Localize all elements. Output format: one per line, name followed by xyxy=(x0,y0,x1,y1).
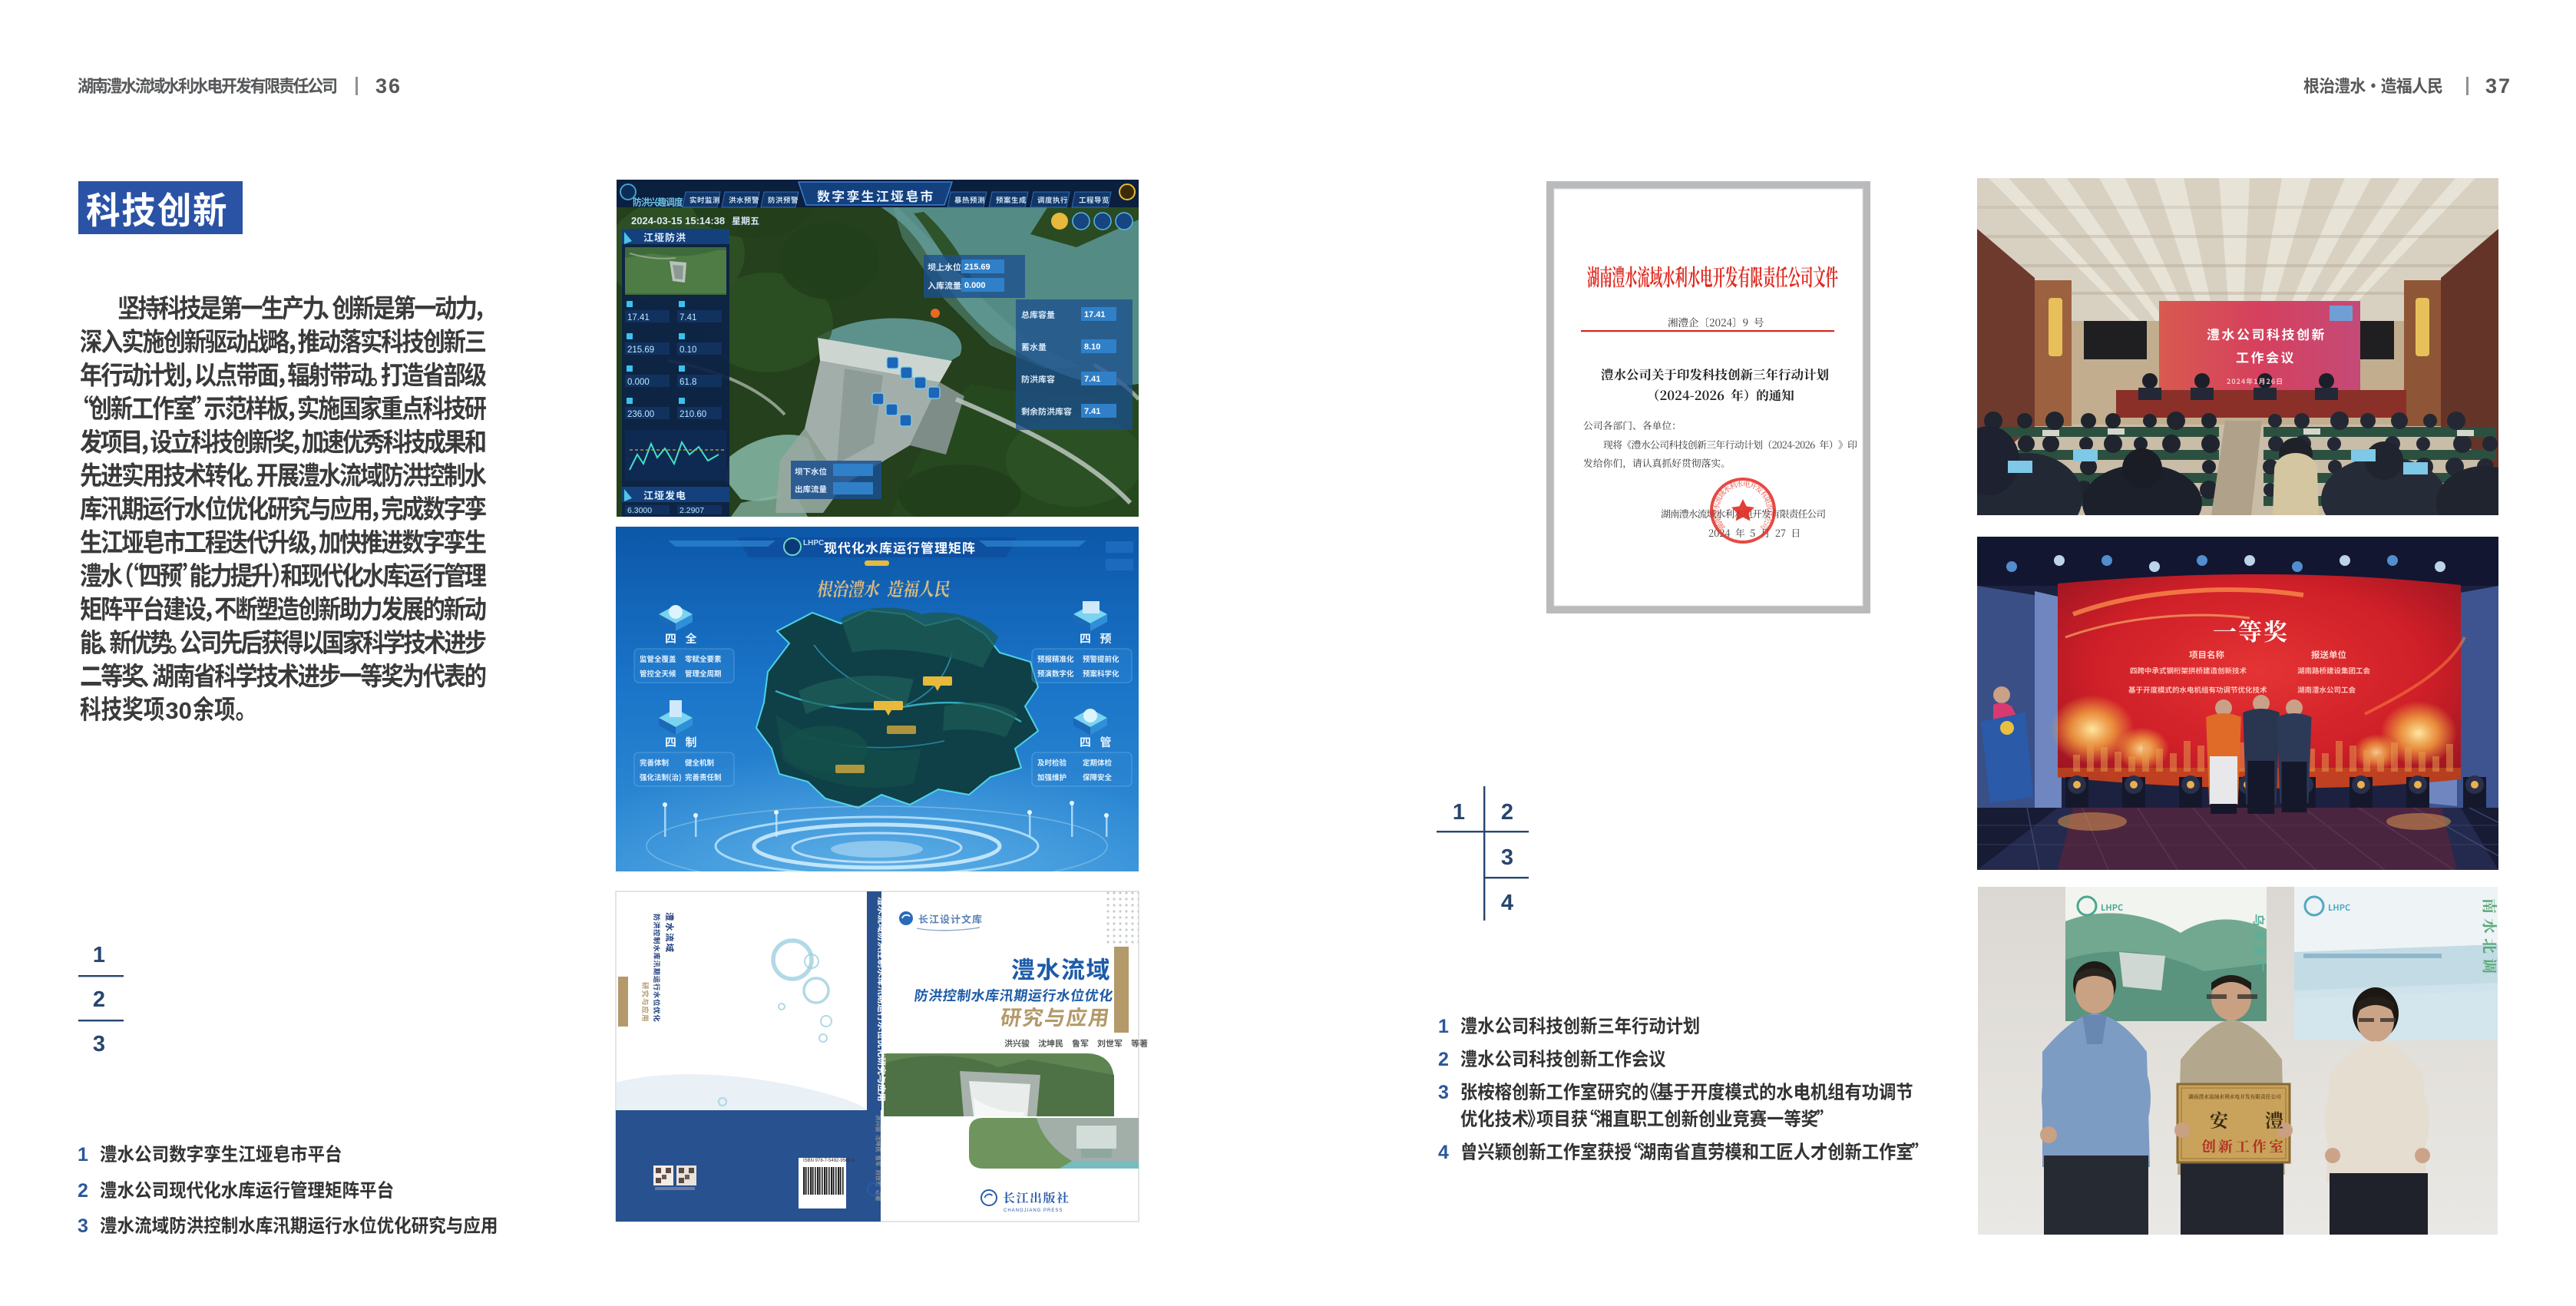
svg-text:17.41: 17.41 xyxy=(627,313,650,322)
svg-text:4: 4 xyxy=(1501,891,1513,915)
svg-text:0.000: 0.000 xyxy=(964,281,986,290)
svg-text:0.000: 0.000 xyxy=(627,378,650,387)
svg-text:215.69: 215.69 xyxy=(964,263,990,272)
svg-text:7.41: 7.41 xyxy=(1084,375,1100,384)
svg-text:215.69: 215.69 xyxy=(627,346,654,355)
svg-text:210.60: 210.60 xyxy=(680,410,706,419)
svg-text:3: 3 xyxy=(78,1215,88,1237)
svg-text:36: 36 xyxy=(375,74,402,98)
svg-text:2.2907: 2.2907 xyxy=(680,506,704,515)
svg-text:8.10: 8.10 xyxy=(1084,342,1100,352)
svg-text:6.3000: 6.3000 xyxy=(627,506,652,515)
svg-text:1: 1 xyxy=(93,943,105,967)
svg-text:2: 2 xyxy=(78,1180,88,1202)
svg-text:1: 1 xyxy=(1438,1016,1449,1037)
svg-text:3: 3 xyxy=(1438,1082,1449,1103)
svg-text:2: 2 xyxy=(1438,1049,1449,1070)
svg-text:3: 3 xyxy=(1501,845,1513,870)
svg-text:37: 37 xyxy=(2485,74,2512,98)
svg-text:ISBN 978-7-5492-9569-9: ISBN 978-7-5492-9569-9 xyxy=(803,1159,855,1163)
svg-text:CHANGJIANG PRESS: CHANGJIANG PRESS xyxy=(1004,1208,1063,1213)
svg-text:61.8: 61.8 xyxy=(680,378,696,387)
svg-text:4: 4 xyxy=(1438,1142,1449,1163)
svg-text:7.41: 7.41 xyxy=(680,313,696,322)
svg-text:2024-03-15 15:14:38: 2024-03-15 15:14:38 xyxy=(631,215,725,226)
svg-text:2: 2 xyxy=(1501,800,1513,825)
svg-text:LHPC: LHPC xyxy=(803,539,824,547)
svg-text:2: 2 xyxy=(93,987,105,1012)
svg-text:7.41: 7.41 xyxy=(1084,407,1100,416)
svg-text:30: 30 xyxy=(165,697,191,724)
svg-text:1: 1 xyxy=(1453,800,1465,825)
svg-text:236.00: 236.00 xyxy=(627,410,654,419)
svg-text:1: 1 xyxy=(78,1144,88,1165)
svg-text:3: 3 xyxy=(93,1032,105,1056)
svg-text:17.41: 17.41 xyxy=(1084,310,1106,319)
svg-text:0.10: 0.10 xyxy=(680,346,696,355)
